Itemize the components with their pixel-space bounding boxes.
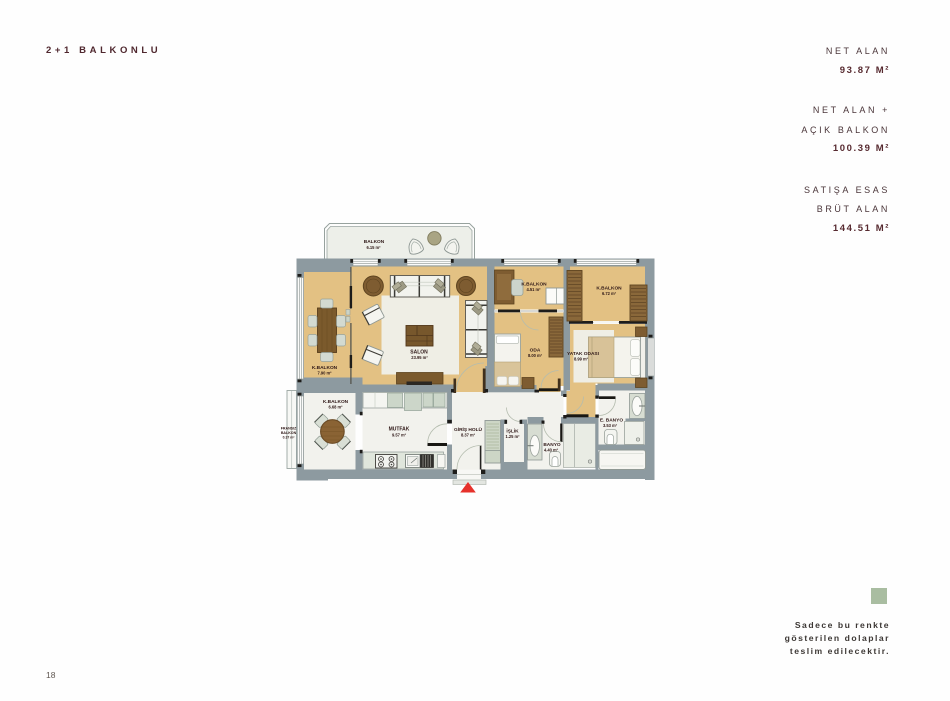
svg-text:9.57 m²: 9.57 m² bbox=[392, 433, 407, 438]
svg-text:8.99 m²: 8.99 m² bbox=[574, 357, 589, 362]
svg-text:8.37 m²: 8.37 m² bbox=[461, 433, 476, 438]
svg-text:1.25 m²: 1.25 m² bbox=[505, 434, 520, 439]
svg-text:8.00 m²: 8.00 m² bbox=[528, 353, 543, 358]
svg-text:4.40 m²: 4.40 m² bbox=[544, 448, 559, 453]
svg-text:FRANSIZ: FRANSIZ bbox=[281, 427, 297, 431]
svg-text:6.15 m²: 6.15 m² bbox=[366, 245, 381, 250]
svg-text:0.37 m²: 0.37 m² bbox=[283, 436, 296, 440]
svg-text:BALKON: BALKON bbox=[281, 431, 297, 435]
svg-text:6.68 m²: 6.68 m² bbox=[328, 405, 343, 410]
svg-text:4.51 m²: 4.51 m² bbox=[526, 287, 541, 292]
svg-text:23.95 m²: 23.95 m² bbox=[411, 355, 428, 360]
svg-text:7.90 m²: 7.90 m² bbox=[317, 371, 332, 376]
svg-text:6.72 m²: 6.72 m² bbox=[602, 291, 617, 296]
svg-text:3.53 m²: 3.53 m² bbox=[603, 423, 618, 428]
